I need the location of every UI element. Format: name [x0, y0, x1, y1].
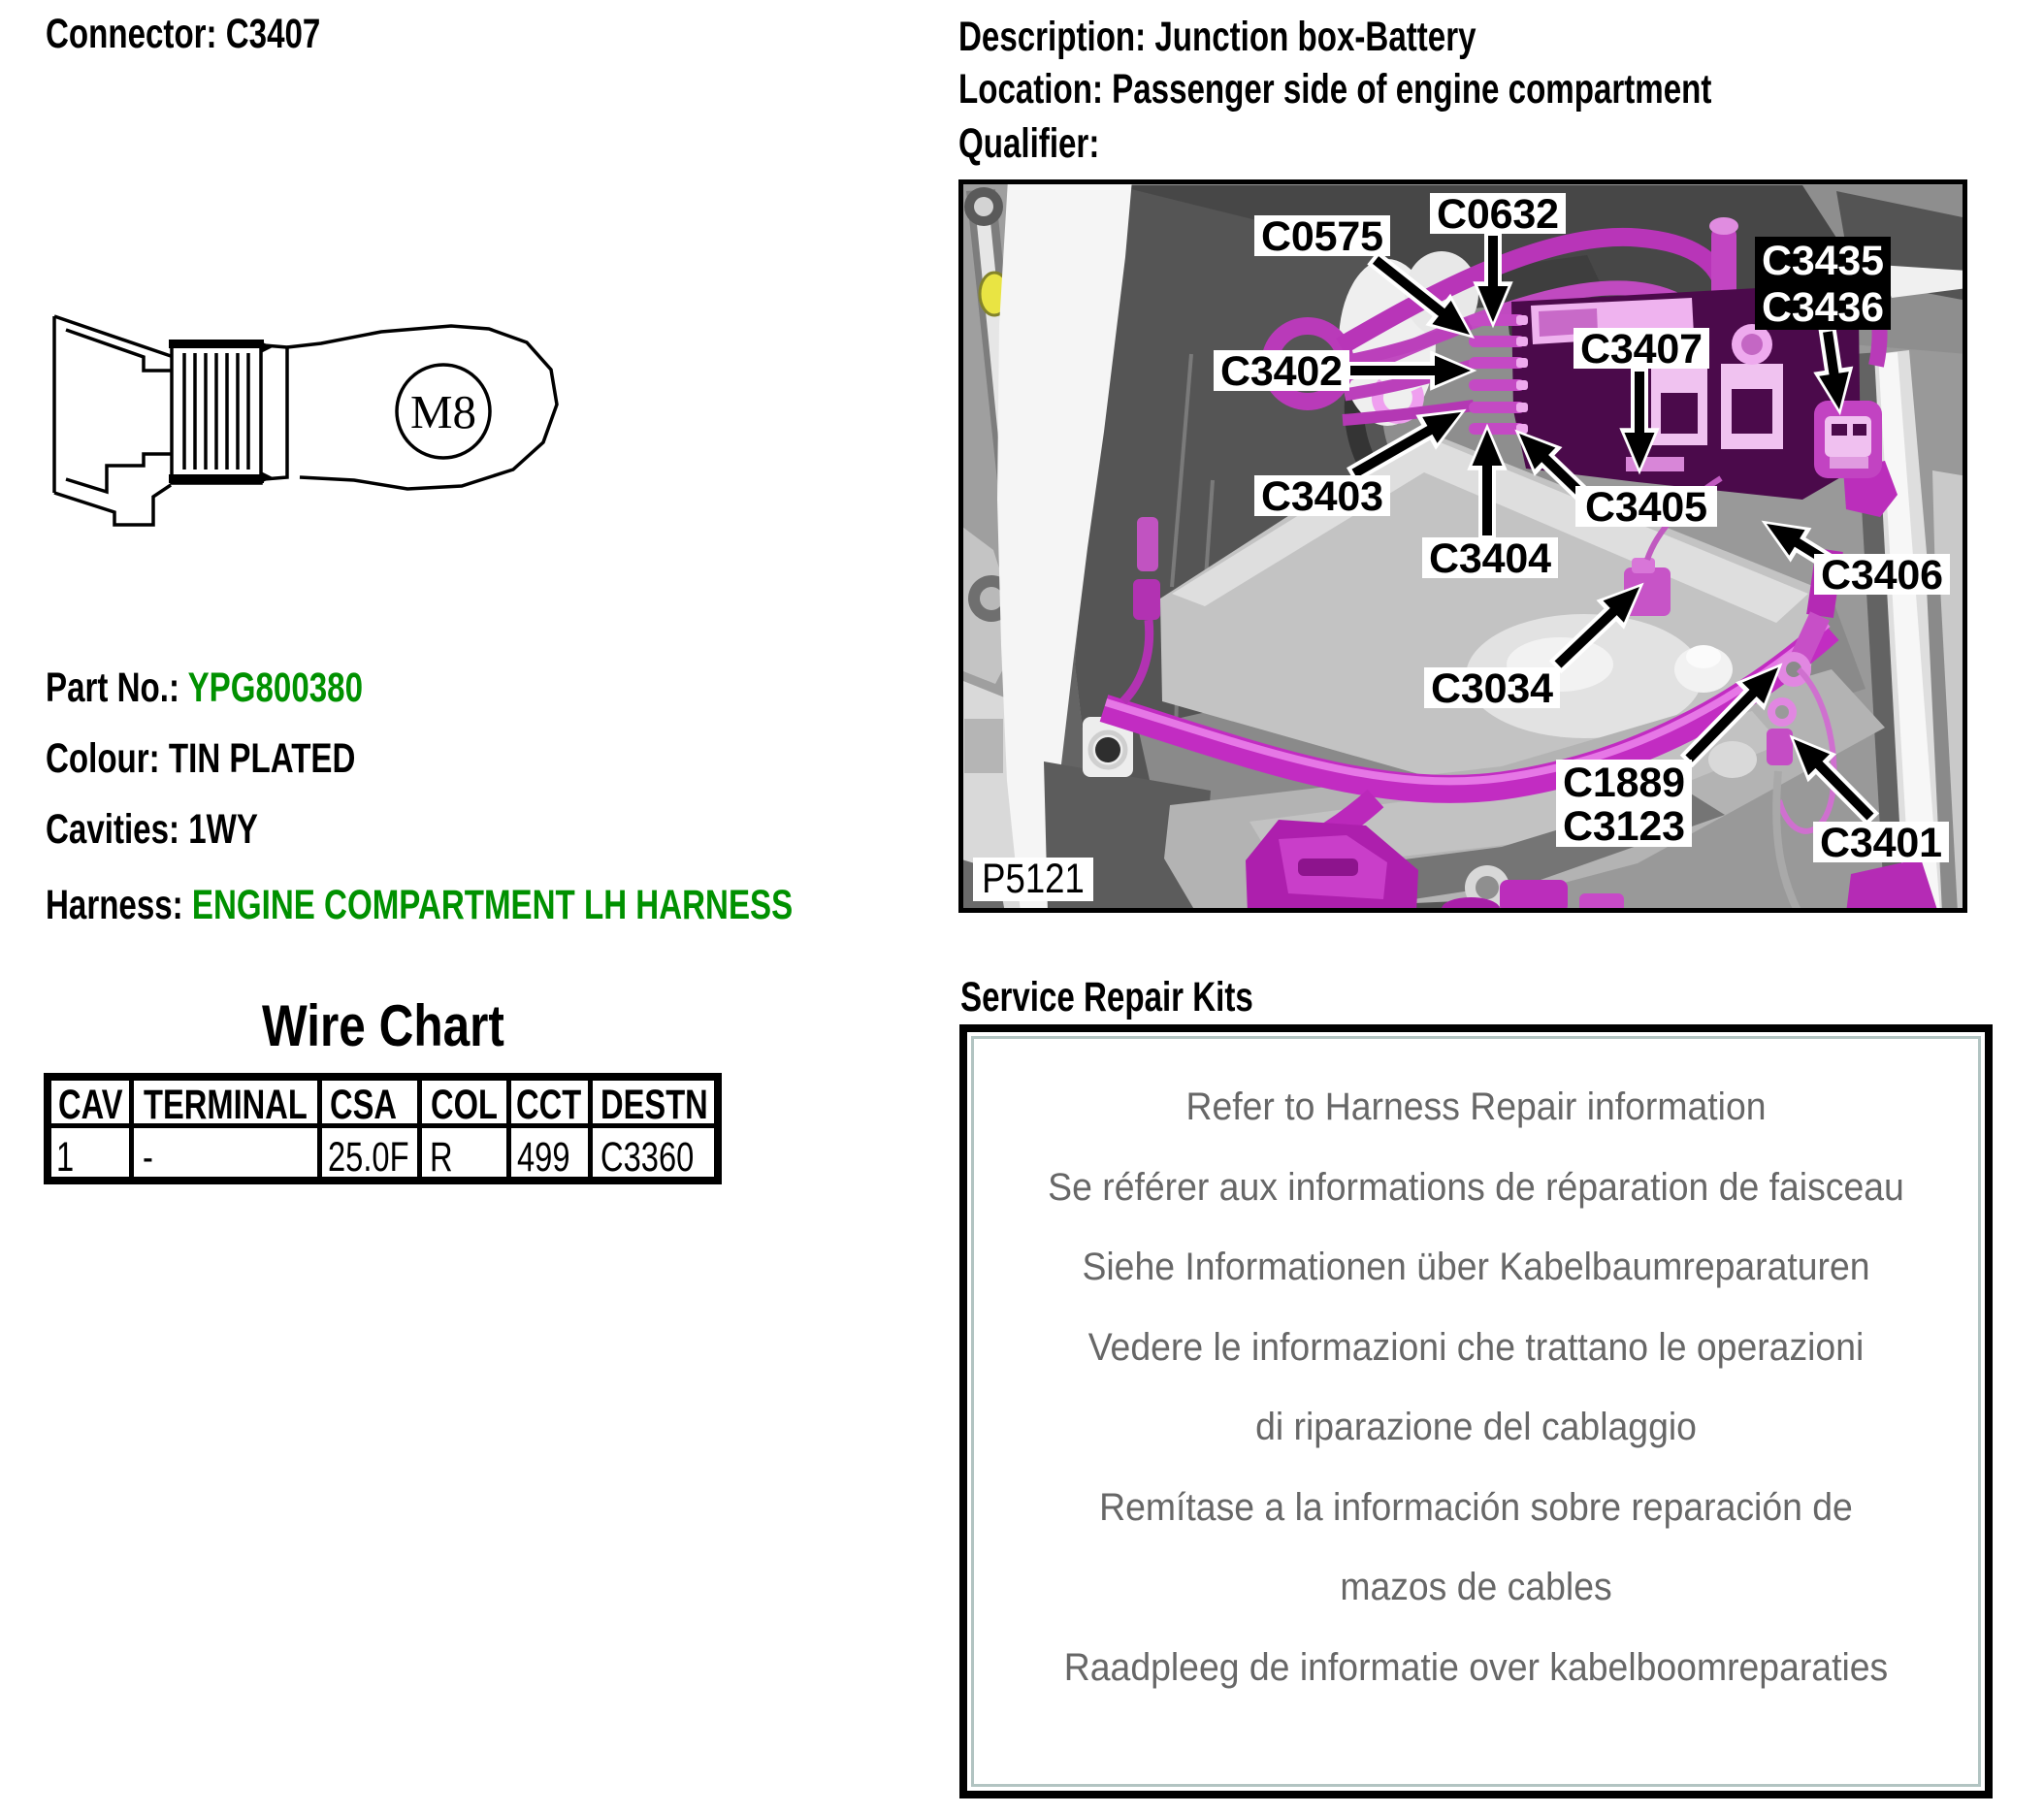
svg-text:C3407: C3407: [1580, 326, 1703, 373]
svg-text:C3405: C3405: [1585, 484, 1707, 531]
svg-text:C0575: C0575: [1261, 213, 1383, 260]
svg-text:C3402: C3402: [1220, 348, 1343, 395]
svg-text:C0632: C0632: [1437, 191, 1559, 238]
svg-text:C3123: C3123: [1563, 803, 1685, 850]
svg-text:C3401: C3401: [1820, 820, 1942, 866]
svg-text:C1889: C1889: [1563, 760, 1685, 806]
svg-text:M8: M8: [410, 385, 476, 438]
svg-text:C3034: C3034: [1431, 665, 1553, 712]
svg-text:C3406: C3406: [1821, 552, 1943, 599]
svg-text:C3436: C3436: [1762, 284, 1884, 331]
svg-text:C3435: C3435: [1762, 238, 1884, 284]
svg-text:C3403: C3403: [1261, 473, 1383, 520]
svg-text:C3404: C3404: [1429, 535, 1551, 582]
svg-text:P5121: P5121: [982, 856, 1085, 901]
